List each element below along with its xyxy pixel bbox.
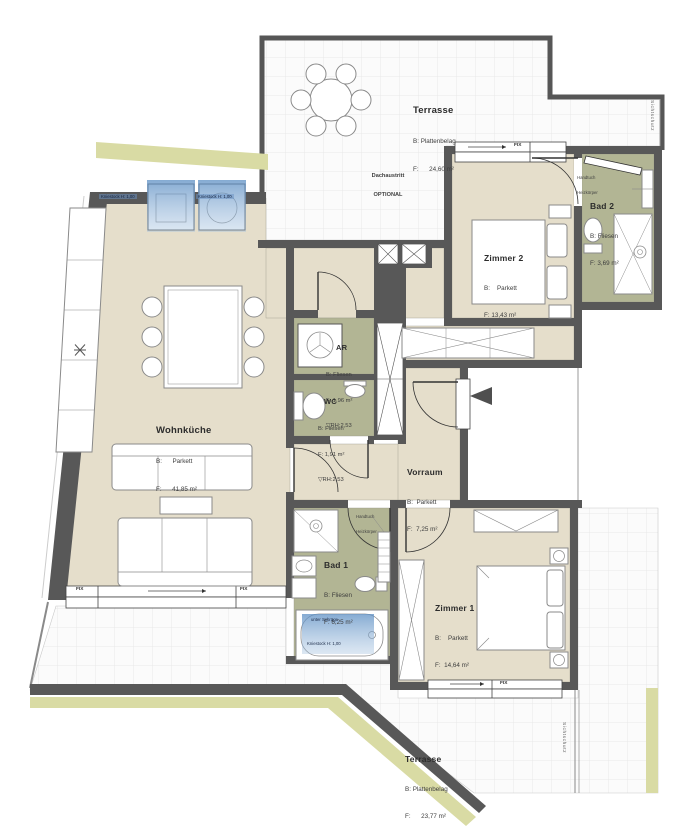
room-floor: B: Parkett: [407, 498, 443, 507]
built-in-closet: [402, 328, 534, 358]
exterior-strip-right: [646, 688, 658, 793]
window-zimmer1-south: [428, 680, 562, 698]
room-height: ▽RH:2,53: [318, 476, 344, 484]
room-label-zimmer2: Zimmer 2 B: Parkett F: 13,43 m²: [484, 234, 523, 329]
room-name: AR: [336, 343, 352, 354]
room-floor: B: Fliesen: [326, 371, 352, 379]
room-label-bad1: Bad 1 B: Fliesen F: 6,25 m²: [324, 541, 353, 636]
entrance-threshold: [456, 379, 470, 429]
room-label-wohnkueche: Wohnküche B: Parkett F: 41,85 m²: [156, 406, 211, 503]
knee-wall-note-right: Kniestock H: 1,00: [196, 194, 234, 199]
room-floor: B: Fliesen: [324, 591, 353, 600]
exterior-strip-top: [96, 142, 268, 170]
tub-note: unter Schräge: [311, 617, 338, 622]
bed-zimmer1: [477, 548, 568, 668]
nightstand: [549, 205, 571, 218]
room-area: F: 7,25 m²: [407, 525, 443, 534]
room-name: Bad 2: [590, 200, 619, 212]
knee-wall-highlight-right: [198, 180, 246, 232]
room-floor: B: Fliesen: [590, 232, 619, 241]
room-label-wc: WC B: Fliesen F: 1,91 m² ▽RH:2,53: [318, 380, 344, 493]
room-label-terrasse-bottom: Terrasse B: Plattenbelag F: 23,77 m²: [405, 735, 448, 830]
knee-wall-highlight-left: [147, 180, 195, 232]
corridor: [294, 444, 406, 500]
knee-wall-note-left: Kniestock H: 1,00: [99, 194, 137, 199]
room-name: WC: [324, 397, 344, 408]
room-floor: B: Plattenbelag: [405, 785, 448, 794]
fixed-window-label: FIX: [514, 143, 521, 148]
room-name: Zimmer 1: [435, 602, 474, 614]
room-label-vorraum: Vorraum B: Parkett F: 7,25 m²: [407, 448, 443, 543]
room-floor: B: Parkett: [156, 457, 211, 466]
floor-plan: Terrasse B: Plattenbelag F: 24,60 m² Dac…: [0, 0, 680, 838]
room-name: Vorraum: [407, 466, 443, 478]
sofa-south: [118, 518, 252, 586]
window-wohnkueche-south: [66, 586, 286, 608]
fixed-window-label: FIX: [76, 587, 83, 592]
room-area: F: 13,43 m²: [484, 311, 523, 320]
towel-radiator-label-bad1: Handtuch Heizkörper: [356, 505, 377, 540]
room-area: F: 41,85 m²: [156, 485, 211, 494]
room-name: Terrasse: [413, 104, 456, 118]
privacy-screen-label-top: Sichtschutz: [649, 100, 654, 131]
privacy-screen-label-bottom: Sichtschutz: [561, 722, 566, 753]
room-area: F: 14,64 m²: [435, 661, 474, 670]
fixed-window-label: FIX: [500, 681, 507, 686]
room-floor: B: Parkett: [484, 284, 523, 293]
room-name: Zimmer 2: [484, 252, 523, 264]
room-name: Wohnküche: [156, 424, 211, 438]
exterior-entry-area: [468, 368, 578, 500]
fixed-window-label: FIX: [240, 587, 247, 592]
room-area: F: 3,69 m²: [590, 259, 619, 268]
wardrobe-top-zimmer1: [474, 510, 558, 532]
room-name: Bad 1: [324, 559, 353, 571]
room-area: F: 1,91 m²: [318, 451, 344, 459]
dining-table: [142, 286, 264, 388]
room-floor: B: Parkett: [435, 634, 474, 643]
window-zimmer2-north: [455, 142, 566, 162]
knee-wall-note-tub: Kniestock H: 1,00: [307, 641, 341, 646]
nightstand: [549, 305, 571, 318]
room-floor: B: Fliesen: [318, 425, 344, 433]
shower-bad2: [614, 214, 652, 294]
roof-access-note: Dachaustritt OPTIONAL: [352, 160, 424, 205]
room-floor: B: Plattenbelag: [413, 137, 456, 146]
room-label-zimmer1: Zimmer 1 B: Parkett F: 14,64 m²: [435, 584, 474, 679]
room-area: F: 23,77 m²: [405, 812, 448, 821]
wardrobe-zimmer1: [399, 560, 424, 680]
room-label-bad2: Bad 2 B: Fliesen F: 3,69 m²: [590, 182, 619, 277]
room-name: Terrasse: [405, 753, 448, 765]
